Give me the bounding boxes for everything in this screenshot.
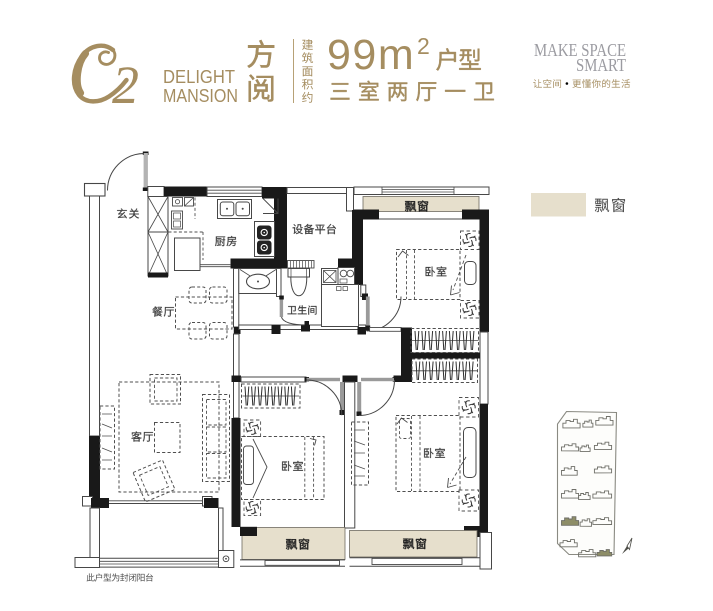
- svg-text:DELIGHT: DELIGHT: [163, 67, 235, 87]
- svg-text:MANSION: MANSION: [163, 86, 238, 106]
- svg-text:99m: 99m: [327, 31, 415, 79]
- svg-text:SMART: SMART: [576, 55, 626, 75]
- svg-text:2: 2: [112, 55, 139, 115]
- svg-text:2: 2: [417, 33, 430, 59]
